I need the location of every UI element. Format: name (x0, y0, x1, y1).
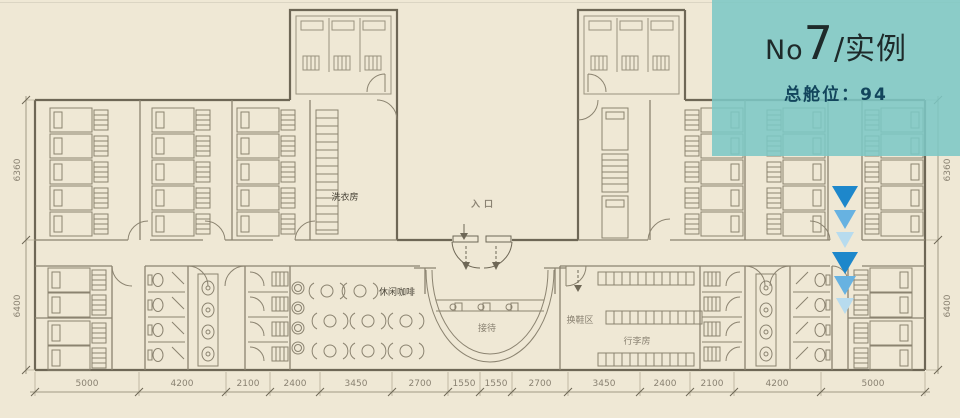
dim-label: 4200 (766, 379, 789, 389)
capsules-left-wing (50, 108, 295, 236)
entrance-doors (452, 224, 582, 292)
dim-label: 6360 (943, 158, 953, 181)
banner-title: No7/实例 (765, 20, 907, 68)
total-capsules-stat: 总舱位：94 (784, 80, 888, 105)
total-capsules-label: 总舱位： (784, 85, 860, 105)
flow-arrow-icon (836, 298, 854, 314)
dim-label: 6400 (13, 294, 23, 317)
flow-arrow-icon (832, 186, 858, 208)
banner-title-number: 7 (804, 20, 834, 66)
dim-label: 1550 (485, 379, 508, 389)
dim-label: 2100 (701, 379, 724, 389)
title-banner: No7/实例 总舱位：94 (712, 0, 960, 156)
banner-title-suffix: /实例 (834, 24, 907, 68)
dim-label: 3450 (345, 379, 368, 389)
cafe-label: 休闲咖啡 (379, 286, 415, 298)
dim-label: 2400 (654, 379, 677, 389)
flow-arrow-icon (834, 276, 856, 295)
shower-rooms-top (296, 16, 679, 94)
dim-label: 4200 (171, 379, 194, 389)
dim-label: 5000 (862, 379, 885, 389)
floor-plan-page: 洗衣房 入口 休闲咖啡 接待 换鞋区 行李房 5000 4200 2100 24… (0, 0, 960, 418)
dim-label: 2100 (237, 379, 260, 389)
dim-label: 6400 (943, 294, 953, 317)
shoe-change-label: 换鞋区 (566, 314, 593, 326)
total-capsules-value: 94 (860, 85, 888, 105)
bathroom-right (702, 266, 830, 366)
reception-label: 接待 (478, 322, 496, 334)
flow-arrow-icon (834, 210, 856, 229)
laundry-label: 洗衣房 (331, 191, 358, 203)
dim-label: 1550 (453, 379, 476, 389)
reception-desk (426, 270, 554, 362)
banner-title-prefix: No (765, 35, 804, 66)
luggage-shelves (598, 272, 702, 366)
dimension-labels-sides: 6360 6400 6360 6400 (13, 158, 953, 317)
dim-label: 5000 (76, 379, 99, 389)
dim-label: 6360 (13, 158, 23, 181)
luggage-label: 行李房 (623, 335, 650, 347)
dim-label: 2400 (284, 379, 307, 389)
dim-label: 3450 (593, 379, 616, 389)
room-labels: 洗衣房 入口 休闲咖啡 接待 换鞋区 行李房 (331, 191, 650, 347)
bathroom-left (148, 266, 288, 366)
dim-label: 2700 (529, 379, 552, 389)
capsules-bottom-corners (48, 268, 912, 370)
entrance-label: 入口 (470, 199, 497, 210)
laundry-machines (316, 110, 338, 234)
dim-label: 2700 (409, 379, 432, 389)
flow-arrow-icon (836, 232, 854, 248)
